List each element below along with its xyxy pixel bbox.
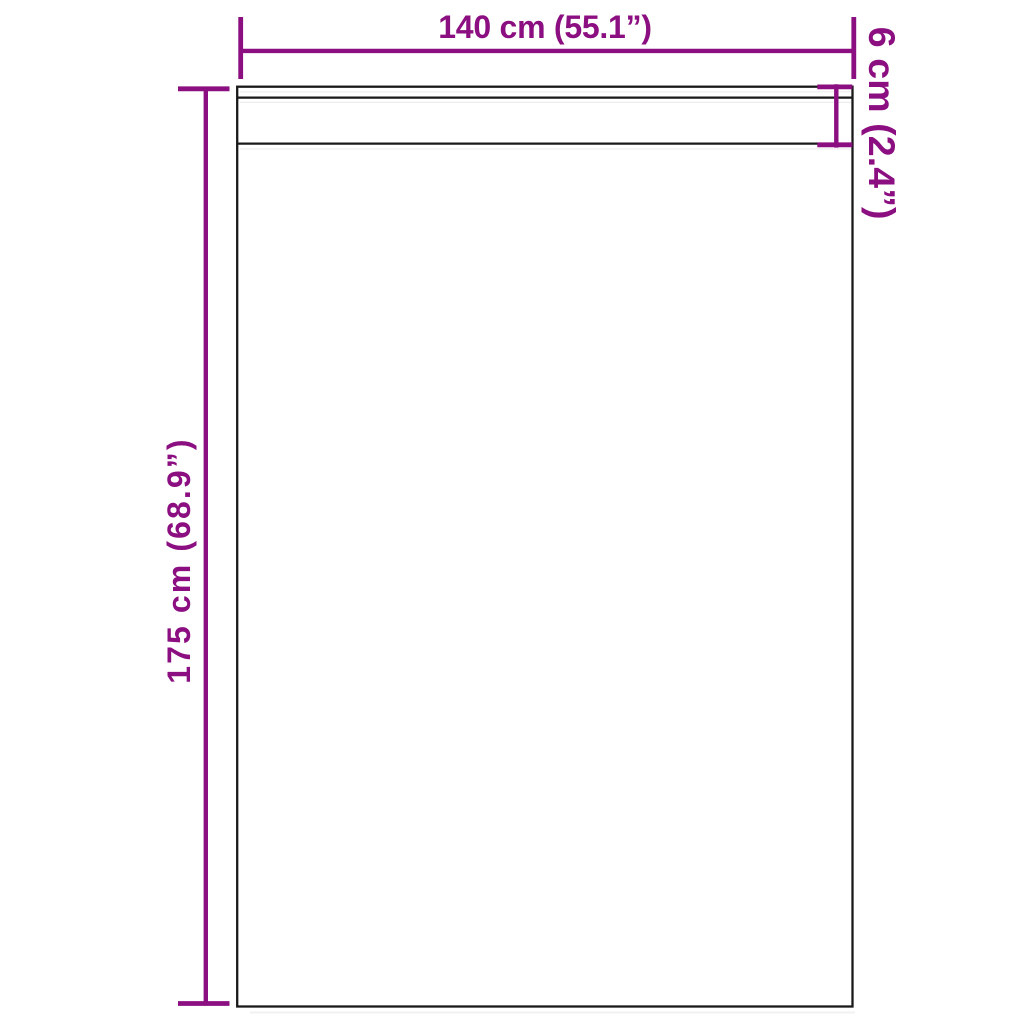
svg-text:175 cm (68.9”): 175 cm (68.9”): [161, 437, 197, 683]
svg-text:140 cm (55.1”): 140 cm (55.1”): [438, 9, 652, 45]
svg-text:6 cm (2.4”): 6 cm (2.4”): [861, 27, 903, 220]
